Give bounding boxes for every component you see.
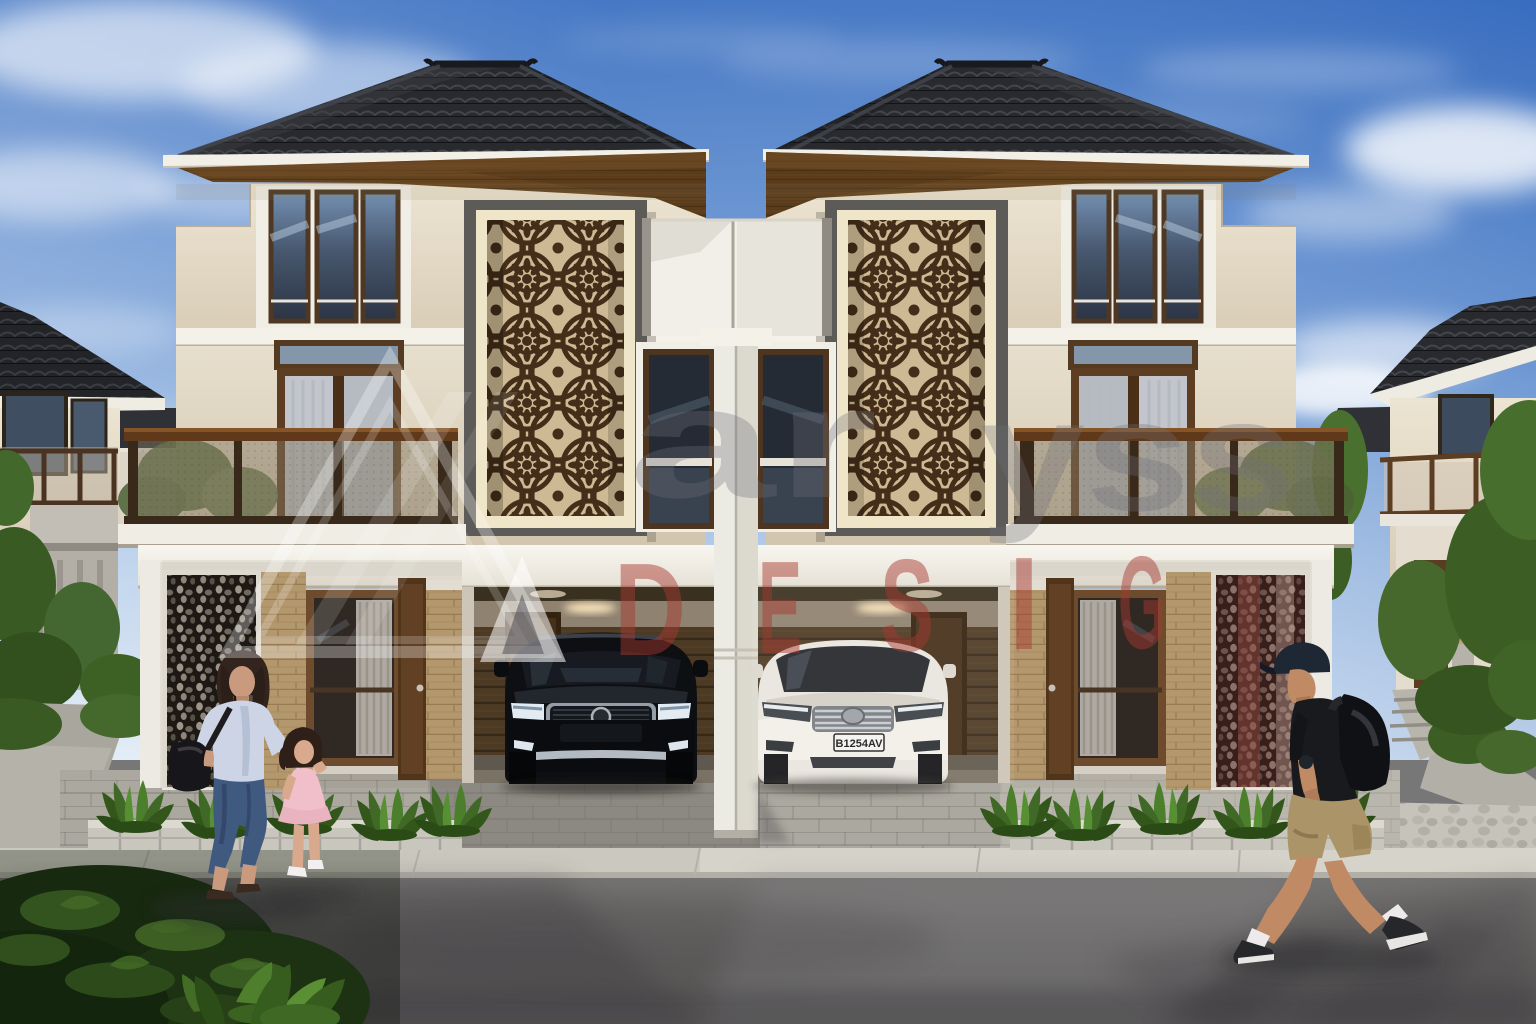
svg-text:E: E <box>758 534 802 681</box>
svg-text:G: G <box>1118 529 1166 676</box>
svg-text:D: D <box>614 536 686 683</box>
svg-text:S: S <box>880 532 934 679</box>
svg-text:I: I <box>1009 530 1039 677</box>
svg-text:yss: yss <box>980 365 1295 544</box>
svg-text:ar: ar <box>628 352 878 531</box>
